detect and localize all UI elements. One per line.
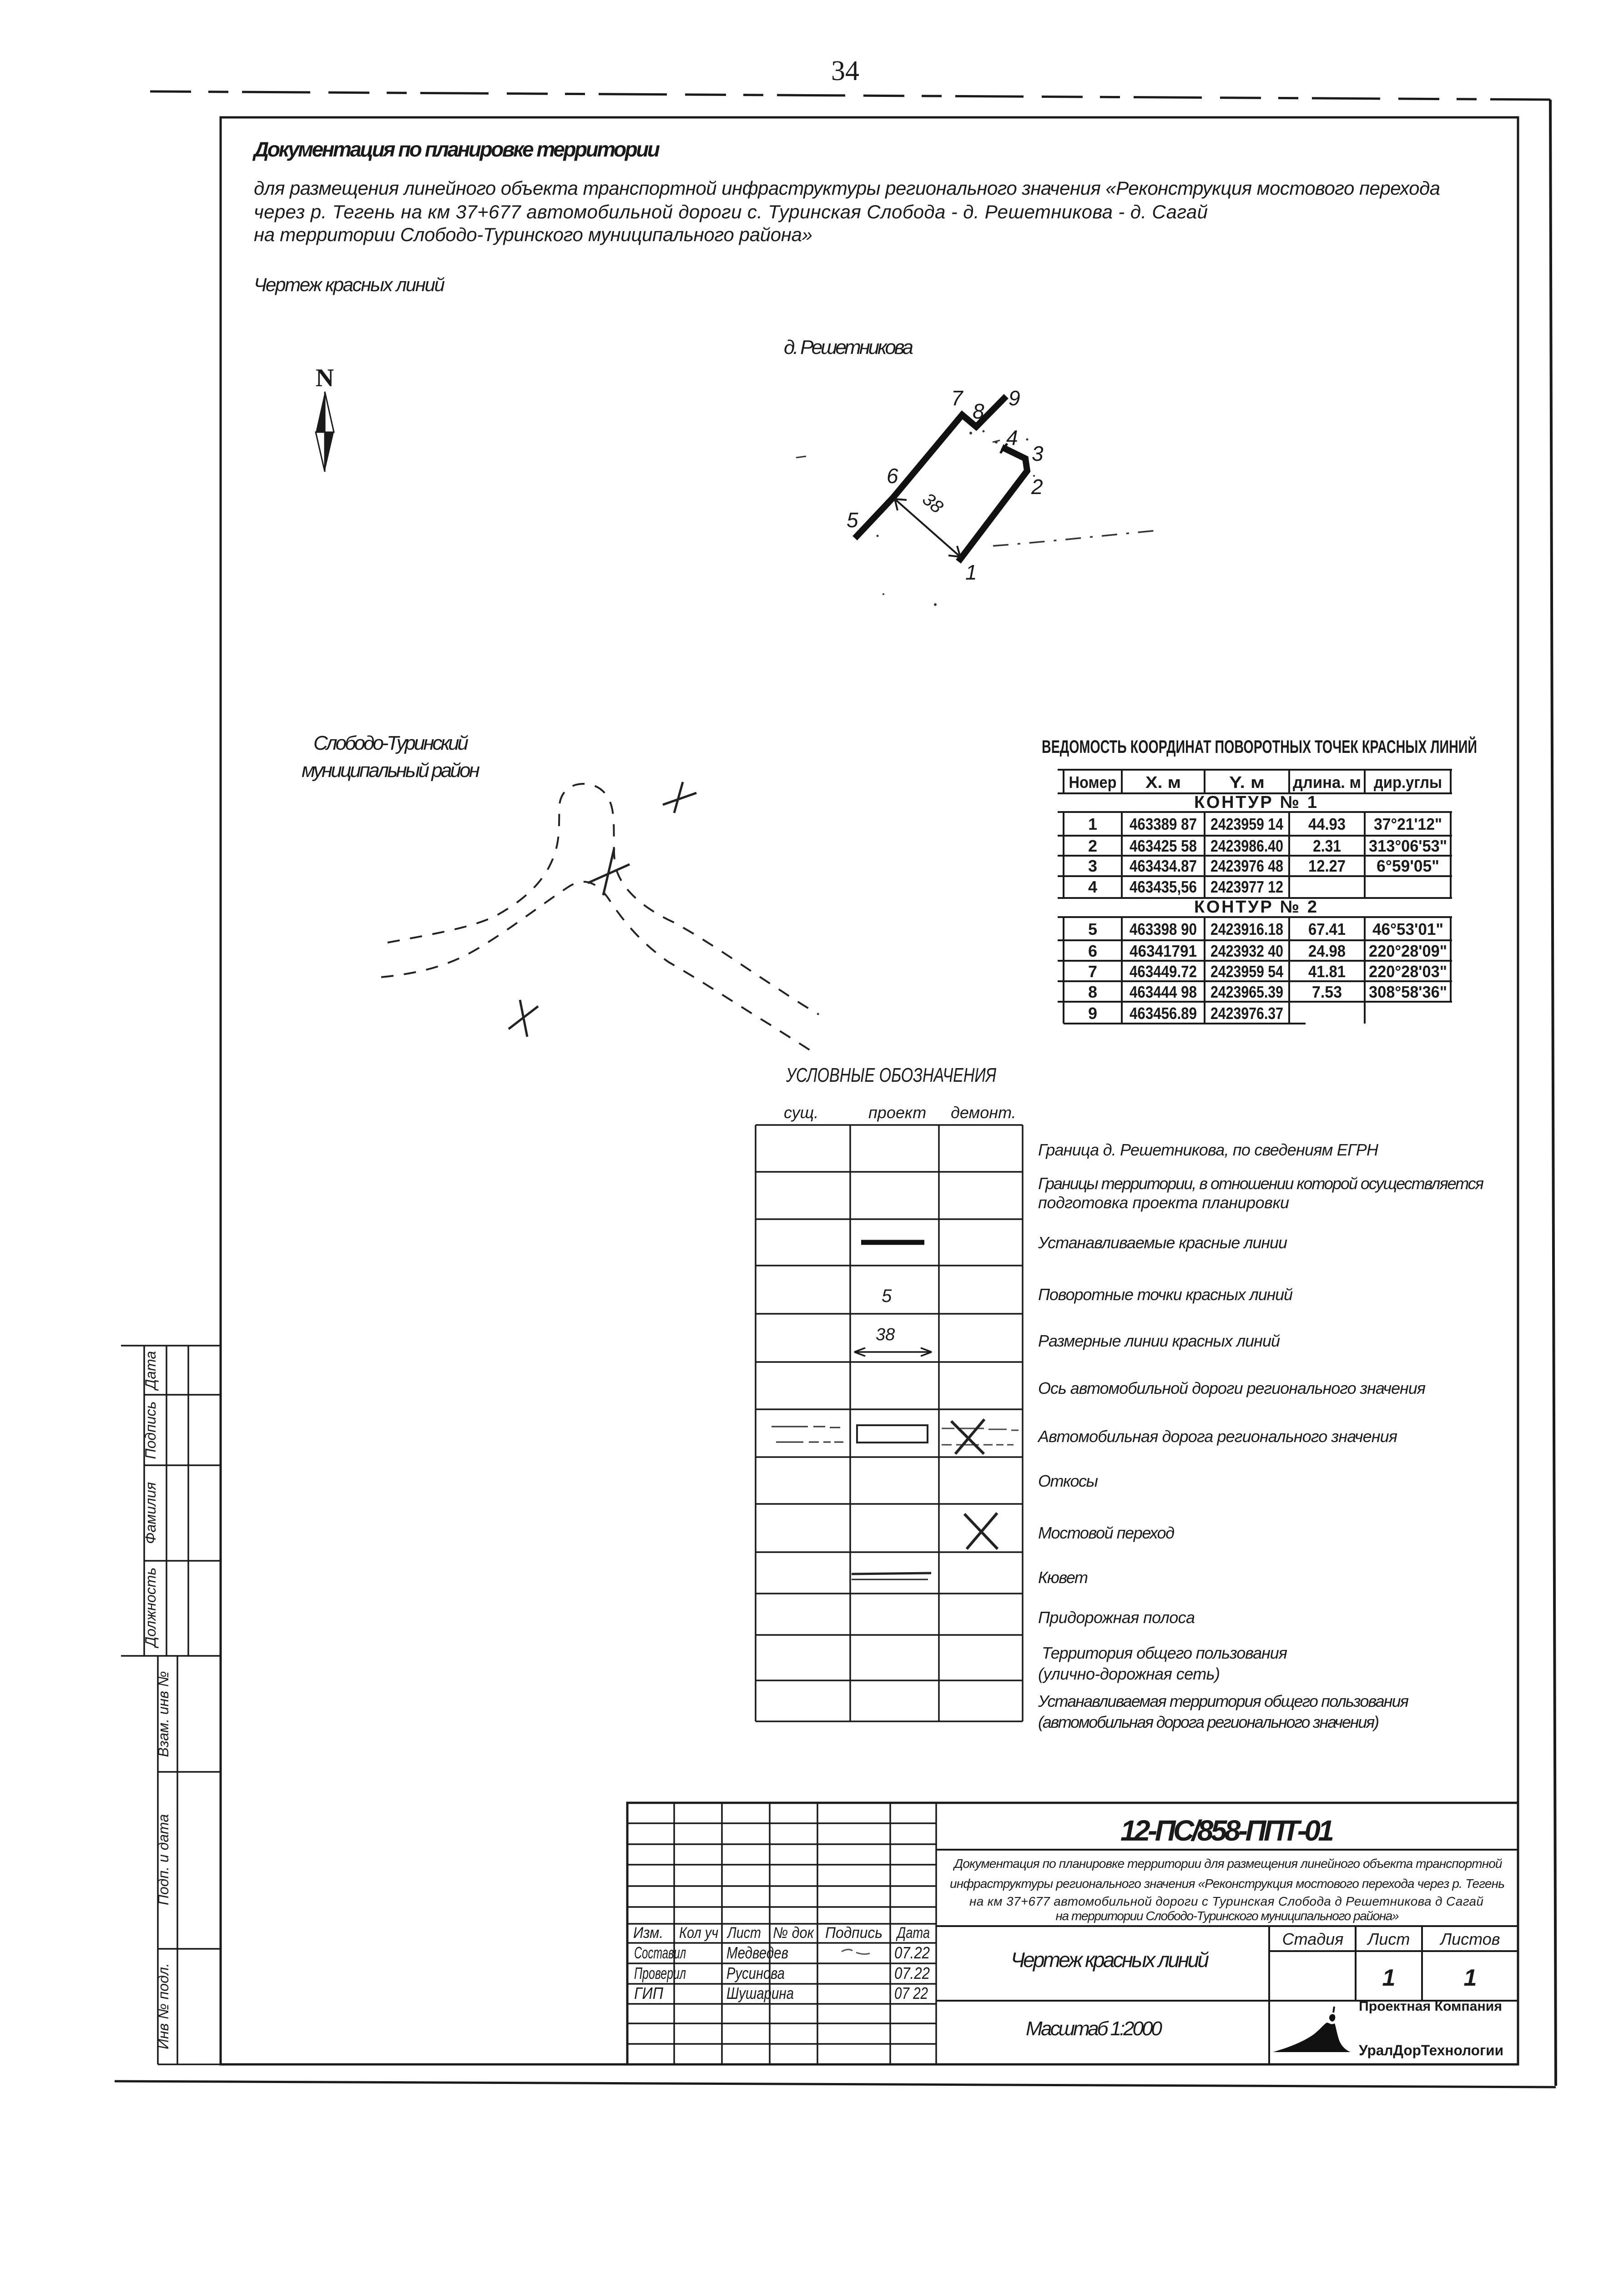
svg-text:Размерные линии красных линий: Размерные линии красных линий	[1038, 1332, 1280, 1350]
svg-text:Подп. и дата: Подп. и дата	[155, 1814, 171, 1905]
svg-text:Граница д. Решетникова, по све: Граница д. Решетникова, по сведениям ЕГР…	[1038, 1140, 1379, 1159]
svg-text:2423977 12: 2423977 12	[1210, 878, 1283, 896]
svg-text:Поворотные точки красных линий: Поворотные точки красных линий	[1038, 1285, 1293, 1304]
svg-text:2423959 14: 2423959 14	[1210, 815, 1283, 833]
svg-text:Масштаб 1:2000: Масштаб 1:2000	[1026, 2018, 1163, 2040]
svg-text:КОНТУР № 1: КОНТУР № 1	[1194, 793, 1317, 812]
svg-text:ГИП: ГИП	[634, 1984, 664, 2003]
svg-text:Изм.: Изм.	[633, 1924, 663, 1942]
svg-text:Мостовой переход: Мостовой переход	[1038, 1523, 1175, 1542]
svg-text:7.53: 7.53	[1312, 983, 1342, 1001]
svg-text:Кювет: Кювет	[1038, 1568, 1088, 1587]
svg-text:КОНТУР № 2: КОНТУР № 2	[1194, 898, 1317, 917]
svg-text:2.31: 2.31	[1313, 837, 1341, 855]
svg-text:УралДорТехнологии: УралДорТехнологии	[1359, 2042, 1503, 2058]
svg-text:2: 2	[1088, 837, 1097, 855]
svg-text:5: 5	[847, 508, 858, 532]
svg-text:6: 6	[1088, 942, 1097, 960]
svg-text:1: 1	[1464, 1965, 1477, 1991]
svg-text:Медведев: Медведев	[726, 1943, 788, 1962]
svg-text:67.41: 67.41	[1308, 920, 1346, 938]
svg-text:демонт.: демонт.	[951, 1103, 1016, 1122]
svg-text:308°58'36": 308°58'36"	[1369, 983, 1447, 1001]
svg-text:9: 9	[1088, 1004, 1097, 1023]
svg-text:инфраструктуры регионального з: инфраструктуры регионального значения «Р…	[950, 1877, 1505, 1891]
svg-text:(улично-дорожная сеть): (улично-дорожная сеть)	[1038, 1665, 1220, 1683]
svg-text:4: 4	[1006, 426, 1018, 449]
svg-text:на территории Слободо-Туринско: на территории Слободо-Туринского муницип…	[254, 224, 812, 245]
svg-text:Стадия: Стадия	[1282, 1930, 1344, 1948]
svg-text:ВЕДОМОСТЬ КООРДИНАТ ПОВОРОТНЫХ: ВЕДОМОСТЬ КООРДИНАТ ПОВОРОТНЫХ ТОЧЕК КРА…	[1042, 736, 1477, 757]
svg-text:подготовка проекта планировки: подготовка проекта планировки	[1038, 1193, 1289, 1212]
svg-text:УСЛОВНЫЕ ОБОЗНАЧЕНИЯ: УСЛОВНЫЕ ОБОЗНАЧЕНИЯ	[786, 1064, 997, 1086]
svg-text:на территории Слободо-Туринско: на территории Слободо-Туринского муницип…	[1056, 1909, 1399, 1923]
svg-text:2: 2	[1031, 475, 1043, 499]
svg-text:Дата: Дата	[896, 1924, 930, 1942]
svg-text:463398 90: 463398 90	[1130, 920, 1197, 938]
svg-text:Должность: Должность	[142, 1568, 159, 1649]
svg-text:2423916.18: 2423916.18	[1210, 920, 1283, 938]
svg-text:46°53'01": 46°53'01"	[1372, 920, 1443, 938]
svg-text:2423976 48: 2423976 48	[1210, 857, 1283, 875]
svg-text:38: 38	[876, 1325, 895, 1344]
svg-text:6: 6	[887, 464, 898, 488]
svg-text:сущ.: сущ.	[784, 1103, 818, 1122]
svg-text:д. Решетникова: д. Решетникова	[784, 336, 913, 358]
svg-text:Y. м: Y. м	[1229, 773, 1265, 792]
svg-text:проект: проект	[868, 1103, 926, 1122]
svg-text:463435,56: 463435,56	[1130, 878, 1197, 896]
svg-text:8: 8	[973, 399, 984, 423]
svg-text:Листов: Листов	[1439, 1930, 1500, 1948]
svg-text:4: 4	[1088, 878, 1097, 896]
svg-text:7: 7	[1088, 962, 1097, 981]
svg-text:Чертеж красных линий: Чертеж красных линий	[254, 274, 445, 295]
svg-text:220°28'09": 220°28'09"	[1369, 942, 1447, 960]
svg-text:Номер: Номер	[1069, 773, 1117, 792]
svg-text:3: 3	[1088, 857, 1097, 875]
svg-text:Инв № подл.: Инв № подл.	[155, 1963, 171, 2049]
svg-text:Откосы: Откосы	[1038, 1472, 1098, 1490]
svg-text:463456.89: 463456.89	[1130, 1004, 1197, 1023]
svg-text:Устанавливаемые красные линии: Устанавливаемые красные линии	[1038, 1233, 1287, 1252]
svg-text:Ось автомобильной дороги регио: Ось автомобильной дороги регионального з…	[1038, 1379, 1426, 1397]
svg-text:Придорожная полоса: Придорожная полоса	[1038, 1608, 1195, 1627]
svg-text:дир.углы: дир.углы	[1374, 773, 1442, 792]
svg-text:34: 34	[831, 55, 859, 86]
svg-text:Подпись: Подпись	[825, 1924, 883, 1942]
svg-text:313°06'53": 313°06'53"	[1369, 837, 1447, 855]
svg-text:Взам. инв №: Взам. инв №	[155, 1671, 171, 1757]
svg-text:2423959 54: 2423959 54	[1210, 962, 1283, 981]
svg-text:5: 5	[1088, 920, 1097, 938]
svg-text:(автомобильная дорога регионал: (автомобильная дорога регионального знач…	[1038, 1713, 1379, 1731]
svg-text:37°21'12": 37°21'12"	[1374, 815, 1442, 833]
svg-text:463449.72: 463449.72	[1130, 962, 1197, 981]
svg-text:463389 87: 463389 87	[1130, 815, 1197, 833]
svg-text:Устанавливаемая территория общ: Устанавливаемая территория общего пользо…	[1038, 1692, 1409, 1710]
svg-text:1: 1	[1088, 815, 1097, 833]
svg-text:Документация по планировке тер: Документация по планировке территории дл…	[953, 1856, 1503, 1871]
svg-text:Документация по планировке тер: Документация по планировке территории	[252, 137, 660, 161]
svg-text:463434.87: 463434.87	[1130, 857, 1197, 875]
svg-text:9: 9	[1009, 386, 1020, 410]
svg-text:8: 8	[1088, 983, 1097, 1001]
svg-text:220°28'03": 220°28'03"	[1369, 962, 1447, 981]
svg-text:Шушарина: Шушарина	[726, 1984, 794, 2003]
svg-text:Чертеж красных линий: Чертеж красных линий	[1011, 1948, 1209, 1972]
svg-text:44.93: 44.93	[1308, 815, 1346, 833]
svg-text:N: N	[316, 364, 334, 392]
svg-text:Подпись: Подпись	[142, 1402, 159, 1459]
svg-text:Границы территории, в отношени: Границы территории, в отношении которой …	[1038, 1174, 1484, 1193]
svg-text:12-ПС/858-ППТ-01: 12-ПС/858-ППТ-01	[1120, 1814, 1334, 1847]
svg-text:2423932 40: 2423932 40	[1210, 942, 1283, 960]
svg-text:41.81: 41.81	[1308, 962, 1346, 981]
svg-text:463425 58: 463425 58	[1130, 837, 1197, 855]
svg-text:Лист: Лист	[726, 1924, 761, 1942]
svg-text:Лист: Лист	[1367, 1930, 1410, 1948]
svg-text:3: 3	[1032, 442, 1044, 465]
svg-text:46341791: 46341791	[1130, 942, 1197, 960]
svg-text:2423986.40: 2423986.40	[1210, 837, 1283, 855]
svg-text:Слободо-Туринский: Слободо-Туринский	[313, 732, 469, 754]
svg-text:2423976.37: 2423976.37	[1210, 1004, 1283, 1023]
svg-text:1: 1	[1382, 1965, 1396, 1991]
svg-text:на км 37+677 автомобильной дор: на км 37+677 автомобильной дороги с Тури…	[969, 1894, 1483, 1908]
svg-text:07 22: 07 22	[894, 1984, 928, 2003]
svg-text:Составил: Составил	[634, 1943, 686, 1962]
svg-text:№ док: № док	[773, 1924, 815, 1942]
svg-text:24.98: 24.98	[1308, 942, 1346, 960]
svg-text:7: 7	[951, 386, 963, 410]
svg-text:длина. м: длина. м	[1293, 773, 1361, 792]
svg-text:через р. Тегень на км 37+677 а: через р. Тегень на км 37+677 автомобильн…	[254, 201, 1208, 222]
svg-text:1: 1	[965, 560, 977, 584]
svg-text:Фамилия: Фамилия	[142, 1482, 159, 1544]
svg-text:5: 5	[882, 1286, 892, 1306]
svg-text:Проектная Компания: Проектная Компания	[1359, 1999, 1502, 2014]
svg-text:6°59'05": 6°59'05"	[1377, 857, 1439, 875]
svg-text:Дата: Дата	[142, 1351, 159, 1391]
svg-text:07.22: 07.22	[894, 1943, 930, 1962]
svg-text:07.22: 07.22	[894, 1964, 930, 1982]
svg-text:Проверил: Проверил	[634, 1964, 686, 1982]
svg-text:X. м: X. м	[1145, 773, 1181, 792]
svg-text:Территория общего пользования: Территория общего пользования	[1042, 1644, 1287, 1662]
svg-text:Русинова: Русинова	[726, 1964, 785, 1982]
svg-text:Кол уч: Кол уч	[679, 1924, 718, 1942]
svg-text:12.27: 12.27	[1308, 857, 1346, 875]
svg-text:Автомобильная дорога региональ: Автомобильная дорога регионального значе…	[1037, 1427, 1397, 1446]
svg-text:для размещения линейного объек: для размещения линейного объекта транспо…	[254, 177, 1440, 199]
svg-text:463444 98: 463444 98	[1130, 983, 1197, 1001]
svg-text:2423965.39: 2423965.39	[1210, 983, 1283, 1001]
svg-text:муниципальный район: муниципальный район	[302, 759, 480, 782]
